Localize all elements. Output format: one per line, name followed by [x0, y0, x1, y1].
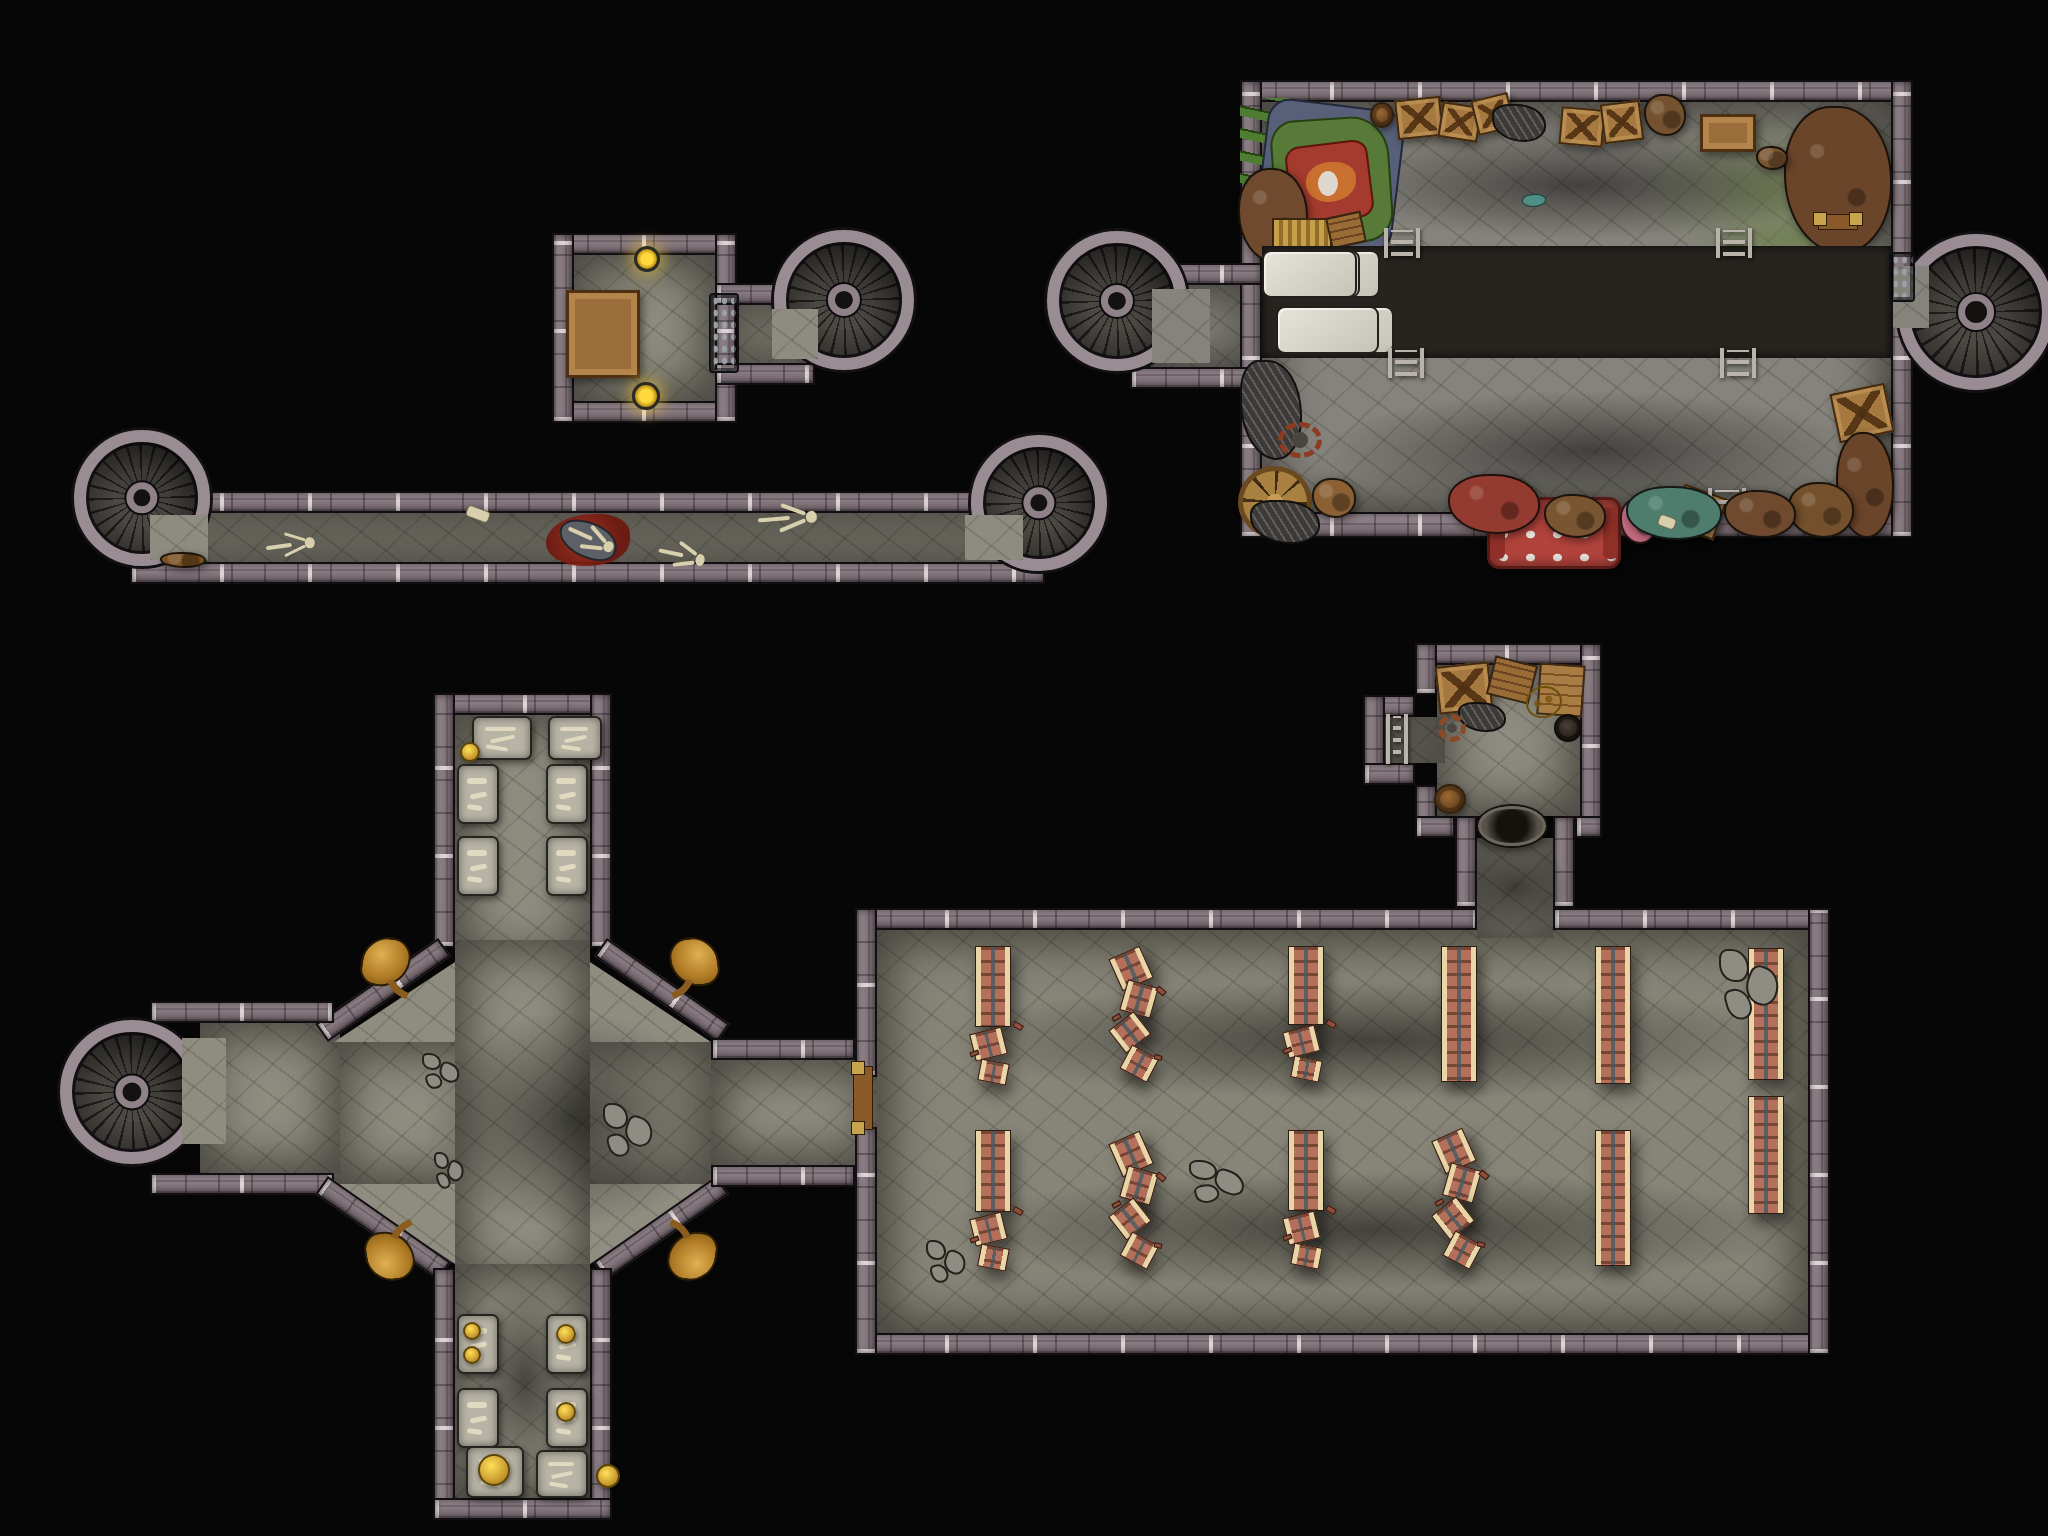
stone-wall [433, 693, 612, 715]
chapel-bench [1595, 1130, 1631, 1266]
bench-segment [977, 1058, 1010, 1085]
stair-opening-floor [1152, 289, 1210, 363]
stone-wall [1363, 763, 1415, 785]
bench-segment [1288, 1130, 1324, 1211]
map-title: Top-down dungeon battle map: crypt, chap… [0, 0, 1, 1]
bone-mark [467, 876, 483, 883]
stone-block-wall-band [1262, 246, 1891, 358]
stone-wall [150, 1173, 334, 1195]
gear-prop [1278, 422, 1322, 458]
stone-wall [1553, 908, 1830, 930]
bone-mark [556, 1354, 572, 1361]
bench-segment [1290, 1055, 1322, 1082]
ladder-prop [1386, 714, 1408, 764]
ladder-prop [1720, 348, 1756, 378]
stair-hub [1958, 294, 1994, 330]
bench-segment [1748, 1096, 1784, 1214]
bone-mark [556, 1428, 572, 1435]
bench-segment [977, 1244, 1010, 1272]
torch-sconce [632, 382, 660, 410]
rubble-prop [432, 1148, 466, 1192]
chapel-bench [1595, 946, 1631, 1084]
dungeon-battle-map: Top-down dungeon battle map: crypt, chap… [0, 0, 2048, 1536]
bone [780, 503, 806, 516]
burial-niche-slab [457, 1314, 499, 1374]
chapel-bench [1441, 1130, 1477, 1270]
rock [1189, 1160, 1217, 1180]
stone-wall [855, 908, 877, 1077]
bone-mark [490, 735, 515, 744]
rock [603, 1103, 628, 1129]
bench-segment [969, 1026, 1008, 1061]
gold-dragon-statue [658, 1220, 726, 1290]
bone-mark [548, 1481, 568, 1488]
rubble-prop [420, 1050, 462, 1092]
shadow-overlay [930, 1170, 1810, 1290]
ladder-prop [1716, 228, 1752, 258]
bench-segment [1282, 1024, 1321, 1058]
gold-treasure-prop [463, 1322, 481, 1340]
bench-segment [1595, 946, 1631, 1084]
stone-wall [855, 908, 1477, 930]
bone-mark [556, 876, 572, 883]
block-row [1262, 250, 1891, 298]
stone-wall [433, 693, 455, 948]
rug-layer [1318, 171, 1338, 196]
bone-mark [564, 735, 587, 743]
chapel-bench [975, 1130, 1011, 1272]
metal-door [709, 293, 739, 373]
clay-pot-prop [1554, 714, 1582, 742]
rock [926, 1240, 946, 1260]
chapel-bench [1118, 948, 1154, 1082]
bone [658, 548, 684, 558]
bone-mark [558, 863, 576, 871]
gear-prop [1438, 714, 1466, 742]
bone-mark [560, 727, 588, 731]
stone-wall [855, 1127, 877, 1355]
bench-segment [1442, 1163, 1482, 1204]
junk-pile-prop [1312, 478, 1356, 518]
barrel-prop [1434, 784, 1466, 814]
bone [672, 560, 694, 566]
stone-wall [1575, 816, 1602, 838]
gold-dragon-statue [660, 928, 728, 998]
stone-block [1262, 250, 1357, 298]
ladder-prop [1384, 228, 1420, 258]
chapel-bench [1748, 1096, 1784, 1214]
barrel-prop [1370, 102, 1394, 128]
bone [758, 516, 790, 523]
crate-prop [1394, 96, 1444, 141]
wooden-table-prop [566, 290, 640, 378]
bench-segment [975, 1130, 1011, 1212]
shadow-overlay [420, 1010, 720, 1230]
rock [422, 1053, 441, 1070]
stone-basin-well [1478, 806, 1546, 846]
shadow-overlay [1320, 390, 1860, 510]
junk-pile-prop [1756, 146, 1788, 170]
burial-niche-slab [546, 1314, 588, 1374]
burial-niche-slab [546, 836, 588, 896]
gold-treasure-prop [463, 1346, 481, 1364]
chapel-bench [1288, 1130, 1324, 1270]
gold-treasure-prop [478, 1454, 510, 1486]
chapel-bench [1118, 1133, 1154, 1270]
wooden-table-prop [1700, 114, 1756, 152]
junk-pile-prop [1544, 494, 1606, 538]
burial-niche-slab [548, 716, 602, 760]
ladder-prop [1388, 348, 1424, 378]
rubble-prop [1716, 942, 1782, 1026]
bench-segment [1441, 946, 1477, 1082]
chapel-bench [1288, 946, 1324, 1082]
wooden-bar-gate [853, 1066, 873, 1130]
bone-mark [551, 1471, 573, 1479]
stone-wall [433, 1268, 455, 1520]
skull [805, 510, 818, 523]
gold-treasure-prop [596, 1464, 620, 1488]
bench-segment [1288, 946, 1324, 1025]
gold-dragon-statue [356, 1220, 424, 1290]
stone-wall [1415, 643, 1437, 695]
crate-prop [1600, 100, 1645, 145]
skull [304, 537, 315, 549]
straw-bed-prop [1272, 218, 1332, 248]
bone-mark [467, 804, 483, 811]
bone [568, 526, 594, 541]
chapel-bench [975, 946, 1011, 1086]
stone-wall [150, 1001, 334, 1023]
stone-wall [711, 1165, 855, 1187]
gold-dragon-statue [352, 928, 420, 998]
bone-mark [469, 863, 487, 871]
wooden-bar-gate [1818, 214, 1858, 230]
bone-mark [467, 778, 488, 784]
rubble-prop [600, 1098, 656, 1162]
shadow-overlay [1460, 842, 1570, 932]
burial-niche-slab [472, 716, 532, 760]
bench-segment [1290, 1242, 1323, 1269]
gold-treasure-prop [556, 1324, 576, 1344]
bench-segment [975, 946, 1011, 1027]
stone-wall [130, 491, 1045, 513]
burial-niche-slab [457, 836, 499, 896]
gold-treasure-prop [460, 742, 480, 762]
bench-segment [1119, 1165, 1159, 1206]
bone-mark [556, 778, 577, 784]
stair-opening-floor [182, 1038, 226, 1144]
block-row [1262, 306, 1891, 354]
torch-sconce [634, 246, 660, 272]
junk-pile-prop [1788, 482, 1854, 538]
stair-opening-floor [772, 309, 818, 359]
chapel-bench [1441, 946, 1477, 1082]
bench-segment [1120, 979, 1160, 1019]
bench-segment [1282, 1210, 1321, 1245]
metal-door [1889, 252, 1915, 302]
rubble-prop [924, 1236, 968, 1286]
bone-mark [556, 850, 577, 856]
bone-mark [561, 744, 581, 751]
skeleton-prop [757, 501, 818, 538]
bench-segment [1595, 1130, 1631, 1266]
bone-mark [469, 791, 487, 799]
stone-wall [433, 1498, 612, 1520]
bone [266, 543, 293, 551]
burial-niche-slab [546, 764, 588, 824]
bone-mark [556, 804, 572, 811]
burial-niche-slab [457, 764, 499, 824]
bone-mark [486, 744, 509, 751]
burial-niche-slab [457, 1388, 499, 1448]
rock [1719, 949, 1749, 983]
bone-mark [485, 727, 516, 731]
crate-prop [1558, 106, 1605, 148]
burial-niche-slab [536, 1450, 588, 1498]
rubble-prop [1186, 1156, 1248, 1206]
bone-mark [467, 850, 488, 856]
stone-wall [855, 1333, 1830, 1355]
stone-wall [1808, 908, 1830, 1355]
stair-hub [115, 1075, 148, 1108]
stair-opening-floor [965, 515, 1023, 560]
junk-pile-prop [1644, 94, 1686, 136]
stone-block [1276, 306, 1379, 354]
bone-mark [467, 1402, 488, 1408]
bone-mark [548, 1462, 574, 1466]
bone [284, 532, 306, 542]
shadow-overlay [930, 980, 1810, 1100]
bone-mark [467, 1428, 483, 1435]
bone-mark [558, 791, 576, 799]
stone-wall [1415, 816, 1455, 838]
stone-wall [1240, 80, 1913, 102]
rock [434, 1152, 449, 1170]
bone-mark [469, 1415, 487, 1423]
stone-wall [711, 1038, 855, 1060]
bone [580, 544, 603, 550]
gold-treasure-prop [556, 1402, 576, 1422]
junk-pile-prop [160, 552, 206, 568]
